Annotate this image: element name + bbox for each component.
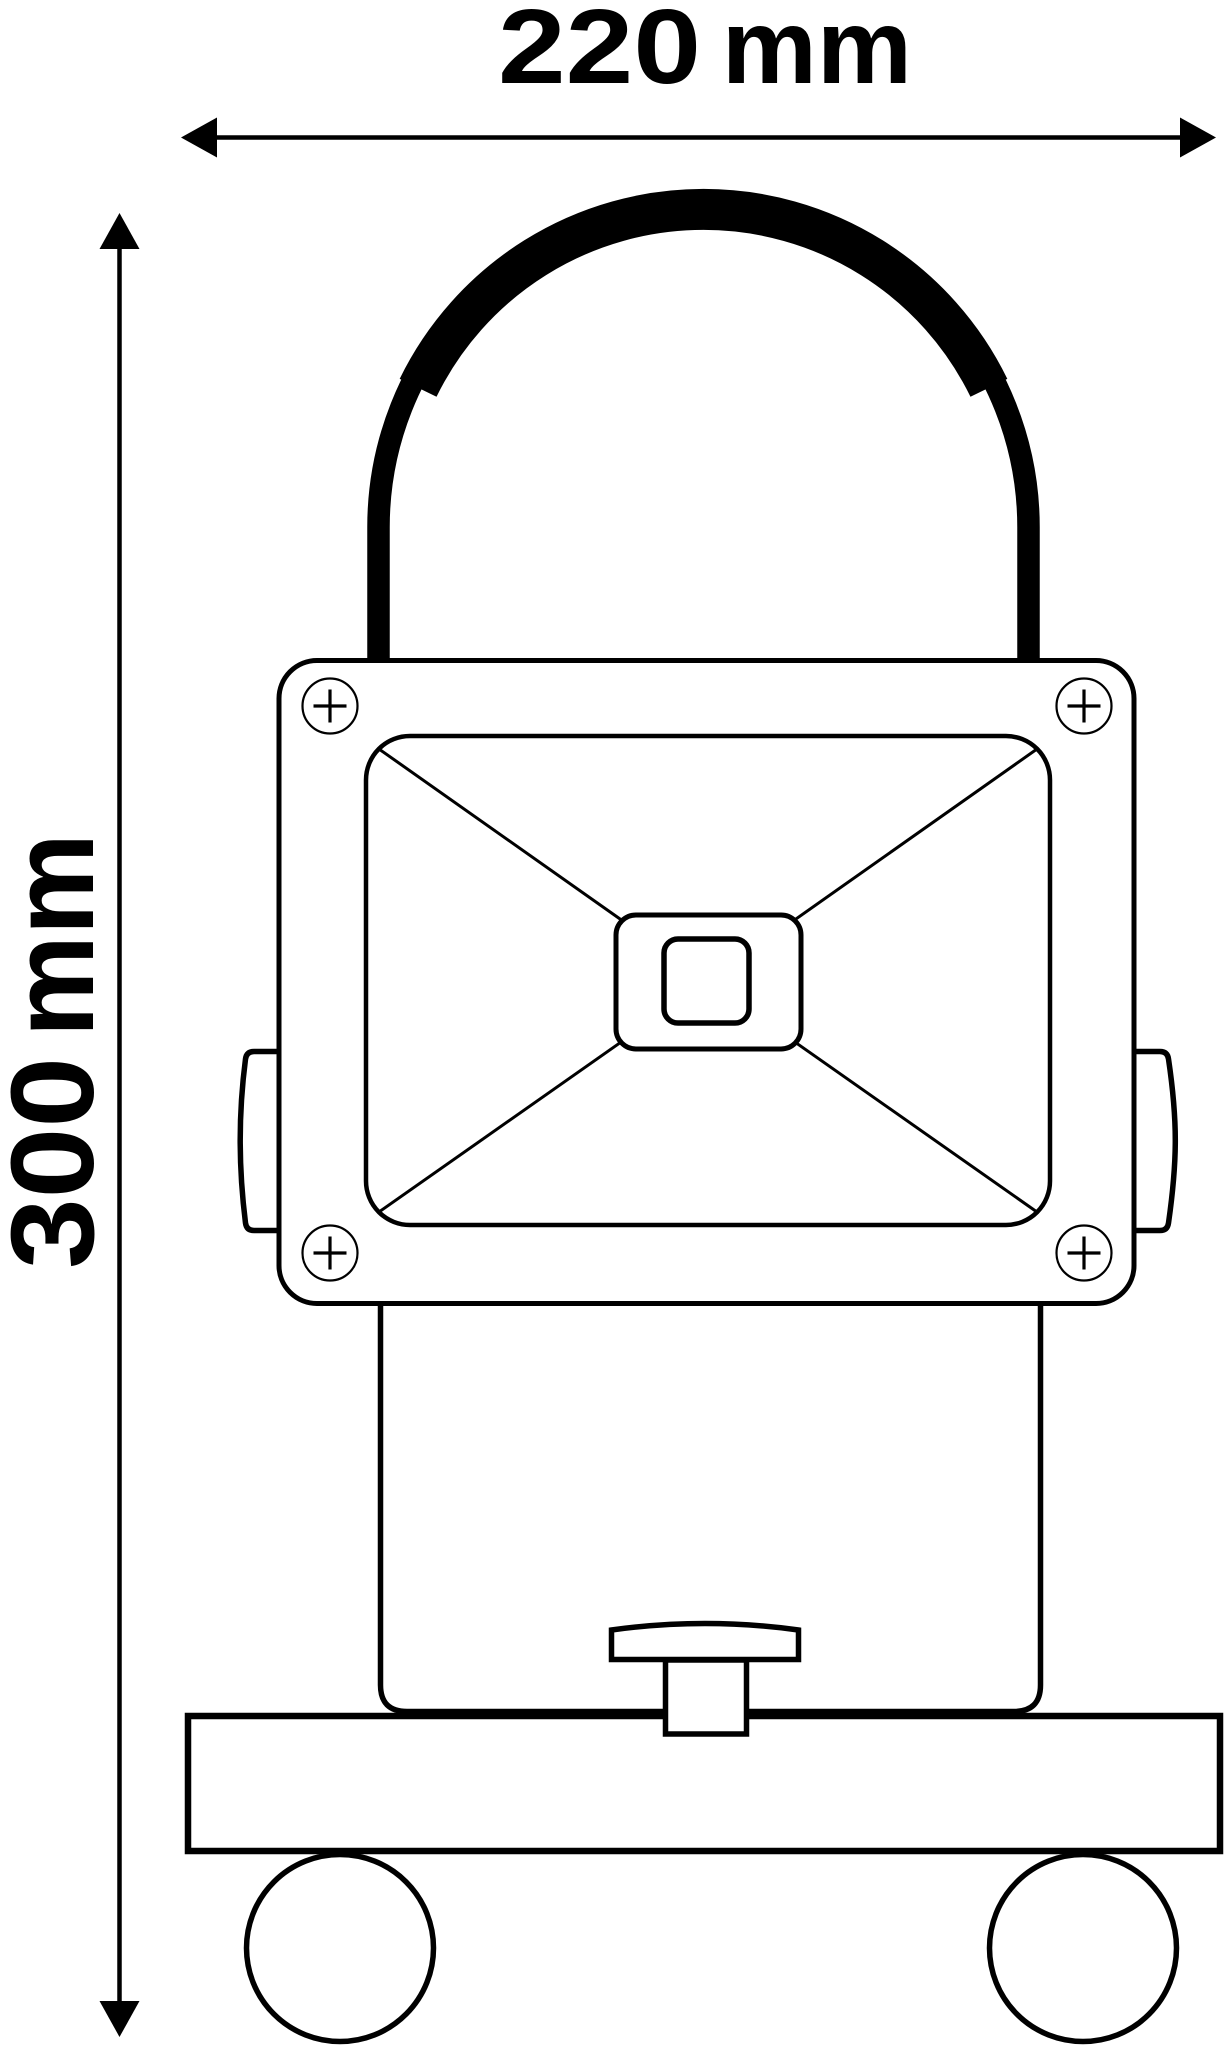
svg-text:300 mm: 300 mm <box>0 833 119 1269</box>
svg-text:220 mm: 220 mm <box>498 0 912 106</box>
